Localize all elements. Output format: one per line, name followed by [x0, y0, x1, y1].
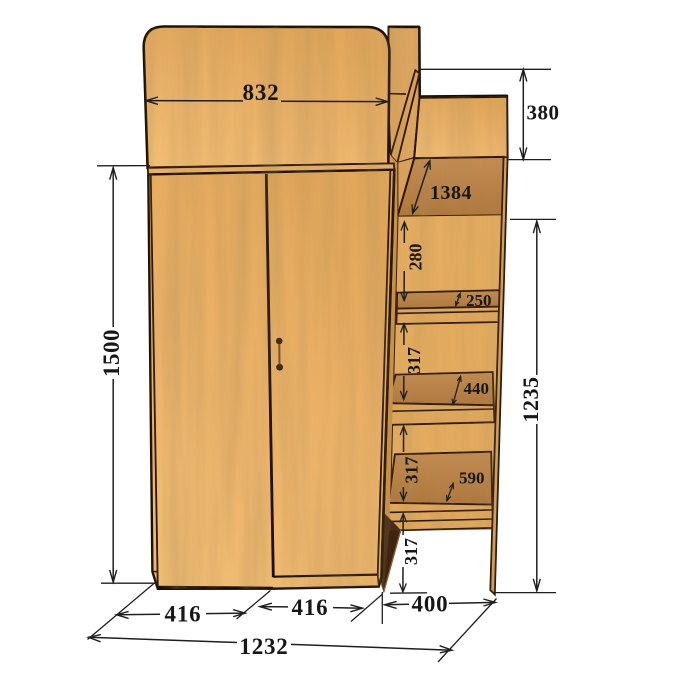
svg-text:317: 317 [404, 347, 424, 374]
svg-text:416: 416 [165, 602, 202, 627]
svg-text:1384: 1384 [430, 182, 472, 204]
svg-text:590: 590 [459, 469, 485, 488]
svg-text:400: 400 [412, 592, 449, 617]
svg-text:1500: 1500 [99, 329, 124, 377]
svg-text:1235: 1235 [518, 377, 543, 423]
svg-text:1232: 1232 [239, 634, 288, 659]
svg-text:380: 380 [527, 101, 560, 125]
svg-text:416: 416 [292, 595, 329, 620]
svg-text:440: 440 [464, 379, 490, 398]
svg-text:832: 832 [243, 80, 280, 105]
svg-text:317: 317 [401, 538, 421, 565]
svg-text:280: 280 [406, 244, 426, 271]
svg-text:250: 250 [466, 291, 492, 310]
svg-text:317: 317 [402, 457, 422, 484]
